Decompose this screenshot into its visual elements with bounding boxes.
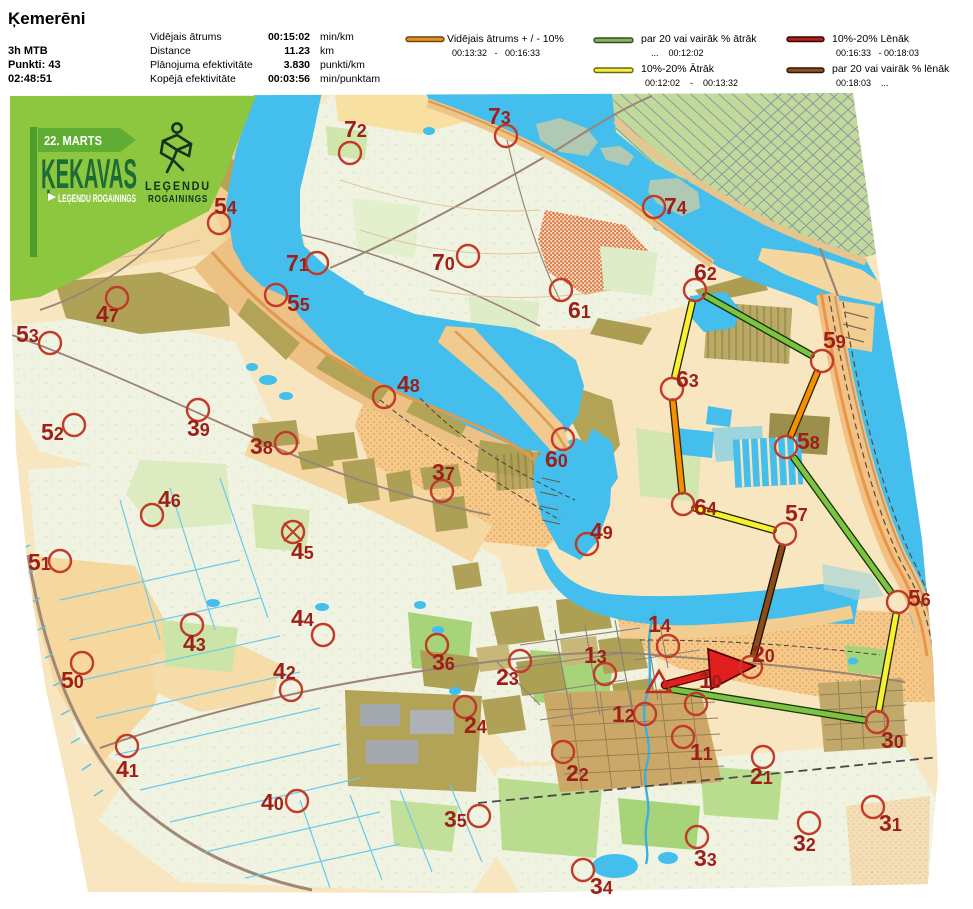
svg-text:LEĢENDU ROGAININGS: LEĢENDU ROGAININGS xyxy=(58,193,136,205)
svg-text:00:03:56: 00:03:56 xyxy=(268,73,310,85)
svg-text:ROGAININGS: ROGAININGS xyxy=(148,194,208,205)
svg-text:10%-20% Lēnāk: 10%-20% Lēnāk xyxy=(832,33,910,45)
svg-text:Ķemerēni: Ķemerēni xyxy=(8,9,85,28)
svg-text:ĶEKAVAS: ĶEKAVAS xyxy=(41,150,137,198)
svg-text:11.23: 11.23 xyxy=(284,45,310,57)
svg-text:00:16:33 - 00:18:03: 00:16:33 - 00:18:03 xyxy=(836,48,919,58)
svg-text:02:48:51: 02:48:51 xyxy=(8,73,52,85)
svg-text:3h MTB: 3h MTB xyxy=(8,45,48,57)
svg-text:Plānojuma efektivitāte: Plānojuma efektivitāte xyxy=(150,59,253,71)
svg-text:10%-20% Ātrāk: 10%-20% Ātrāk xyxy=(641,63,715,75)
svg-text:par 20 vai vairāk % ātrāk: par 20 vai vairāk % ātrāk xyxy=(641,33,757,45)
svg-text:00:12:02 - 00:13:32: 00:12:02 - 00:13:32 xyxy=(645,78,738,88)
svg-text:km: km xyxy=(320,45,334,57)
svg-text:00:13:32 - 00:16:33: 00:13:32 - 00:16:33 xyxy=(452,48,540,58)
svg-text:00:18:03 ...: 00:18:03 ... xyxy=(836,78,889,88)
svg-text:00:15:02: 00:15:02 xyxy=(268,31,310,43)
svg-text:punkti/km: punkti/km xyxy=(320,59,365,71)
svg-text:LEĢENDU: LEĢENDU xyxy=(145,179,211,193)
svg-text:min/punktam: min/punktam xyxy=(320,73,380,85)
svg-text:Distance: Distance xyxy=(150,45,191,57)
svg-text:3.830: 3.830 xyxy=(284,59,310,71)
svg-text:Vidējais ātrums: Vidējais ātrums xyxy=(150,31,222,43)
svg-text:min/km: min/km xyxy=(320,31,354,43)
svg-text:22. MARTS: 22. MARTS xyxy=(44,134,102,148)
svg-text:... 00:12:02: ... 00:12:02 xyxy=(651,48,704,58)
svg-text:par 20 vai vairāk % lēnāk: par 20 vai vairāk % lēnāk xyxy=(832,63,950,75)
svg-text:Punkti: 43: Punkti: 43 xyxy=(8,59,61,71)
svg-text:Kopējā efektivitāte: Kopējā efektivitāte xyxy=(150,73,236,85)
svg-text:Vidējais ātrums + / - 10%: Vidējais ātrums + / - 10% xyxy=(447,33,564,45)
